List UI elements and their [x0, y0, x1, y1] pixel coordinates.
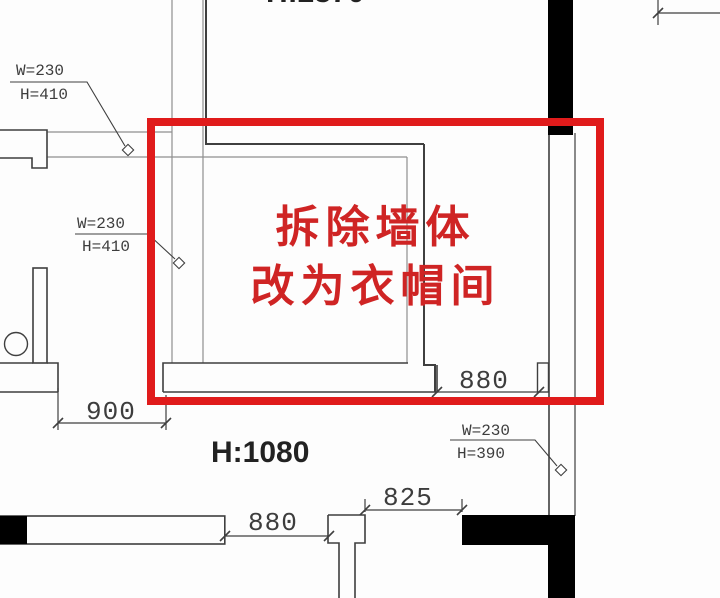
leader-diamond-top-left [122, 144, 133, 155]
left-wall-pier [33, 268, 47, 363]
left-wall-band [0, 363, 58, 392]
label-mid-left-w: W=230 [77, 216, 125, 232]
closet-bottom-wall-band [163, 363, 437, 392]
label-top-left-w: W=230 [16, 63, 64, 79]
floor-plan-canvas: H:2370 W=230 H=410 W=230 H=410 W=230 H=3… [0, 0, 720, 598]
bottom-left-solid-wall-end [0, 516, 27, 544]
dim-880-mid-text: 880 [459, 369, 509, 393]
room-height-upper: H:2370 [266, 0, 364, 8]
label-top-left-h: H=410 [20, 87, 68, 103]
label-mid-left-h: H=410 [82, 239, 130, 255]
leader-diamond-bottom-right [555, 464, 566, 475]
annotation-line2: 改为衣帽间 [147, 257, 604, 316]
demolition-annotation: 拆除墙体 改为衣帽间 [147, 198, 604, 316]
bottom-right-solid-wall-horizontal [462, 515, 575, 545]
dim-825-text: 825 [383, 486, 433, 510]
label-bottom-right-h: H=390 [457, 446, 505, 462]
room-height-lower: H:1080 [211, 438, 309, 468]
label-bottom-right-w: W=230 [462, 423, 510, 439]
dim-880-bottom-text: 880 [248, 511, 298, 535]
fixture-circle [5, 333, 28, 356]
top-right-solid-wall [548, 0, 573, 135]
top-left-wall [0, 130, 47, 168]
dim-900-text: 900 [86, 400, 136, 424]
bottom-center-t-wall [328, 515, 365, 598]
bottom-right-solid-wall-vertical [548, 545, 575, 598]
annotation-line1: 拆除墙体 [147, 198, 604, 257]
bottom-left-wall-band [1, 516, 225, 544]
